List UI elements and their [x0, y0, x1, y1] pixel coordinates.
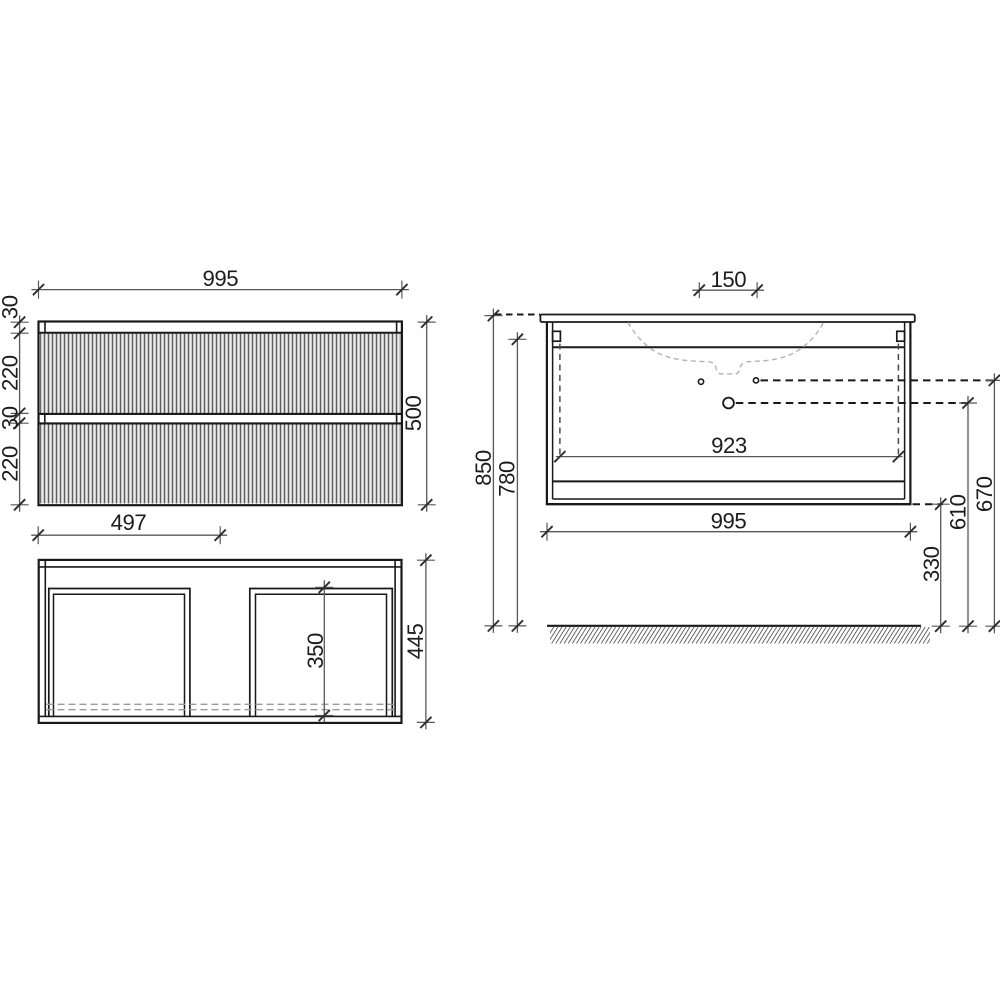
svg-text:445: 445	[403, 623, 428, 659]
svg-text:220: 220	[0, 446, 22, 482]
svg-text:497: 497	[111, 510, 147, 535]
svg-text:610: 610	[946, 494, 971, 530]
svg-text:30: 30	[0, 295, 22, 319]
svg-text:500: 500	[401, 395, 426, 431]
svg-text:923: 923	[711, 433, 747, 458]
svg-text:350: 350	[303, 633, 328, 669]
svg-text:850: 850	[471, 450, 496, 486]
svg-text:330: 330	[919, 546, 944, 582]
svg-text:30: 30	[0, 406, 22, 430]
svg-text:780: 780	[494, 461, 519, 497]
svg-text:150: 150	[710, 267, 746, 292]
svg-text:995: 995	[202, 266, 238, 291]
svg-text:670: 670	[972, 476, 997, 512]
svg-text:220: 220	[0, 355, 22, 391]
svg-text:995: 995	[711, 508, 747, 533]
